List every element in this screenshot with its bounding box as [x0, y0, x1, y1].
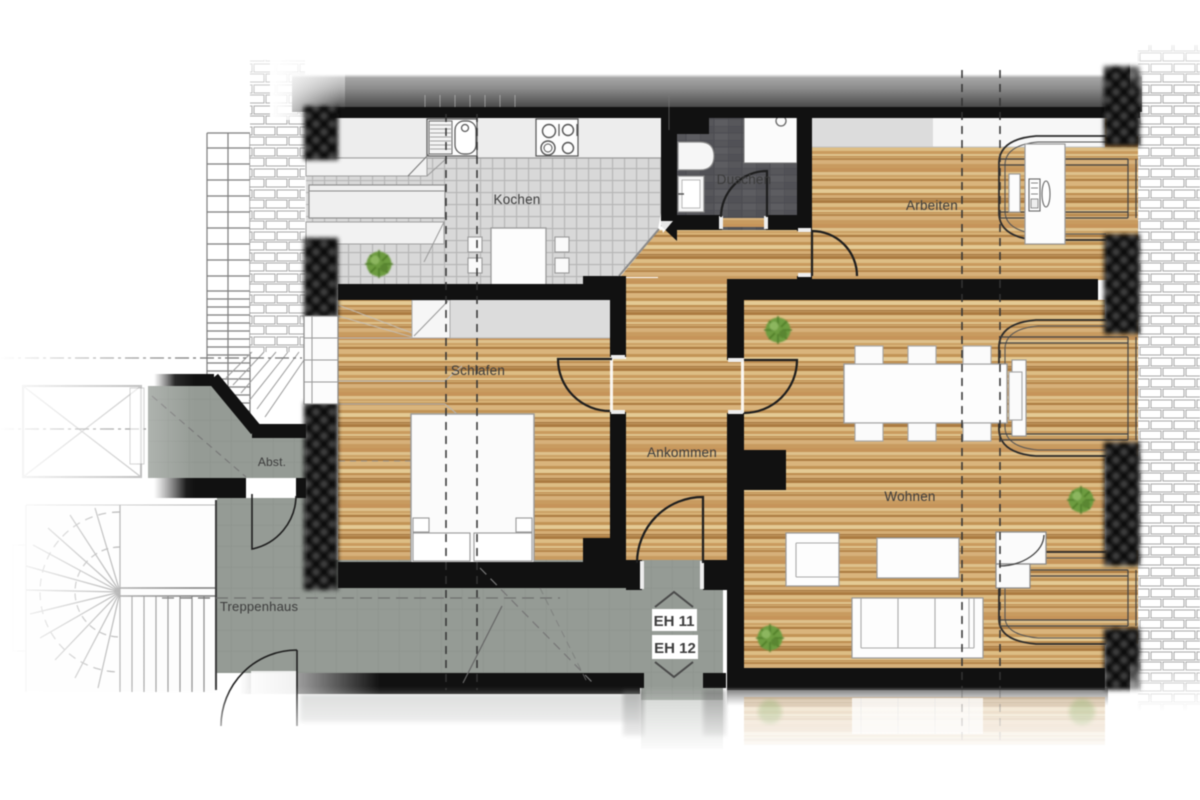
- svg-text:Abst.: Abst.: [258, 455, 286, 469]
- svg-text:EH 11: EH 11: [654, 613, 695, 630]
- svg-text:Treppenhaus: Treppenhaus: [220, 599, 299, 614]
- svg-text:Arbeiten: Arbeiten: [906, 198, 958, 213]
- svg-text:EH 12: EH 12: [654, 640, 696, 657]
- svg-text:Schlafen: Schlafen: [451, 363, 505, 378]
- svg-text:Duschen: Duschen: [717, 172, 772, 187]
- svg-text:Ankommen: Ankommen: [647, 445, 717, 460]
- svg-text:Kochen: Kochen: [494, 192, 541, 207]
- svg-text:Wohnen: Wohnen: [884, 489, 935, 504]
